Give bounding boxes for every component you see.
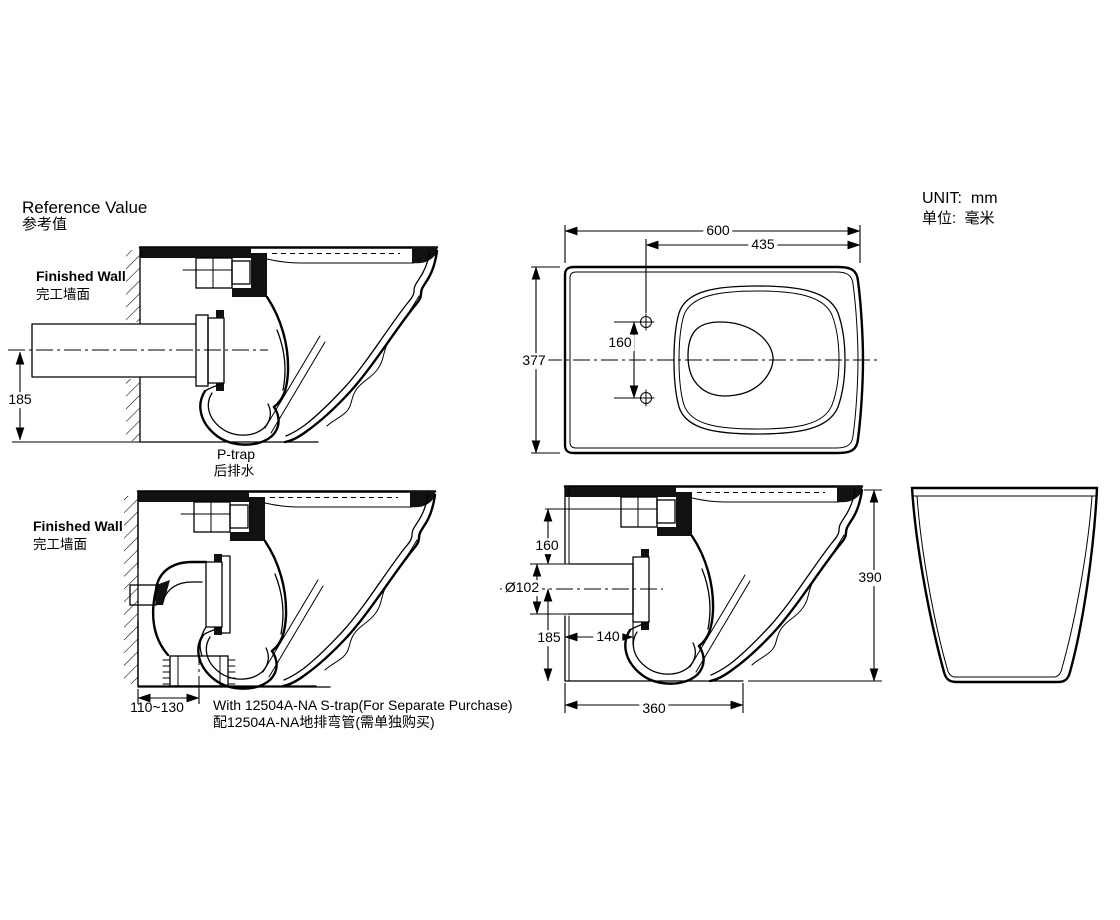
p-trap-caption: P-trap bbox=[214, 447, 258, 463]
finished-wall-label-zh: 完工墙面 bbox=[36, 287, 90, 302]
technical-drawing-linework bbox=[0, 0, 1120, 920]
dim-label-110-130: 110~130 bbox=[127, 700, 187, 716]
rear-view-drawing bbox=[912, 488, 1097, 682]
p-trap-caption-zh: 后排水 bbox=[211, 463, 258, 478]
wall-hatching bbox=[126, 250, 140, 322]
plan-view-drawing bbox=[531, 225, 877, 453]
finished-wall-label: Finished Wall bbox=[36, 269, 126, 285]
s-trap-side-view-drawing bbox=[124, 491, 435, 704]
dim-label-102: Ø102 bbox=[502, 580, 542, 596]
dim-label-600: 600 bbox=[703, 223, 732, 239]
dimensioned-side-view-drawing bbox=[500, 486, 882, 713]
wall-hatching bbox=[126, 379, 140, 441]
s-trap-caption: With 12504A-NA S-trap(For Separate Purch… bbox=[213, 698, 513, 714]
page-title-zh: 参考值 bbox=[22, 217, 67, 234]
unit-label-zh: 单位: 毫米 bbox=[922, 211, 995, 228]
s-trap-caption-zh: 配12504A-NA地排弯管(需单独购买) bbox=[213, 715, 435, 731]
unit-label: UNIT: mm bbox=[922, 190, 998, 208]
wall-hatching bbox=[124, 496, 138, 684]
dim-label-390: 390 bbox=[855, 570, 884, 586]
dim-label-185: 185 bbox=[5, 392, 34, 408]
finished-wall-label-zh: 完工墙面 bbox=[33, 537, 87, 552]
dim-label-185-side: 185 bbox=[534, 630, 563, 646]
toilet-spec-sheet: Reference Value 参考值 UNIT: mm 单位: 毫米 Fini… bbox=[0, 0, 1120, 920]
page-title: Reference Value bbox=[22, 198, 147, 217]
dim-label-360: 360 bbox=[639, 701, 668, 717]
dim-label-377: 377 bbox=[519, 353, 548, 369]
toilet-body-section bbox=[140, 247, 437, 445]
bowl-opening bbox=[688, 322, 773, 396]
dim-label-140: 140 bbox=[593, 629, 622, 645]
s-trap-elbow bbox=[130, 556, 235, 686]
dim-label-160: 160 bbox=[532, 538, 561, 554]
finished-wall-label: Finished Wall bbox=[33, 519, 123, 535]
dim-label-160-holes: 160 bbox=[605, 335, 634, 351]
dim-label-435: 435 bbox=[748, 237, 777, 253]
seat-inner-line bbox=[679, 291, 839, 429]
